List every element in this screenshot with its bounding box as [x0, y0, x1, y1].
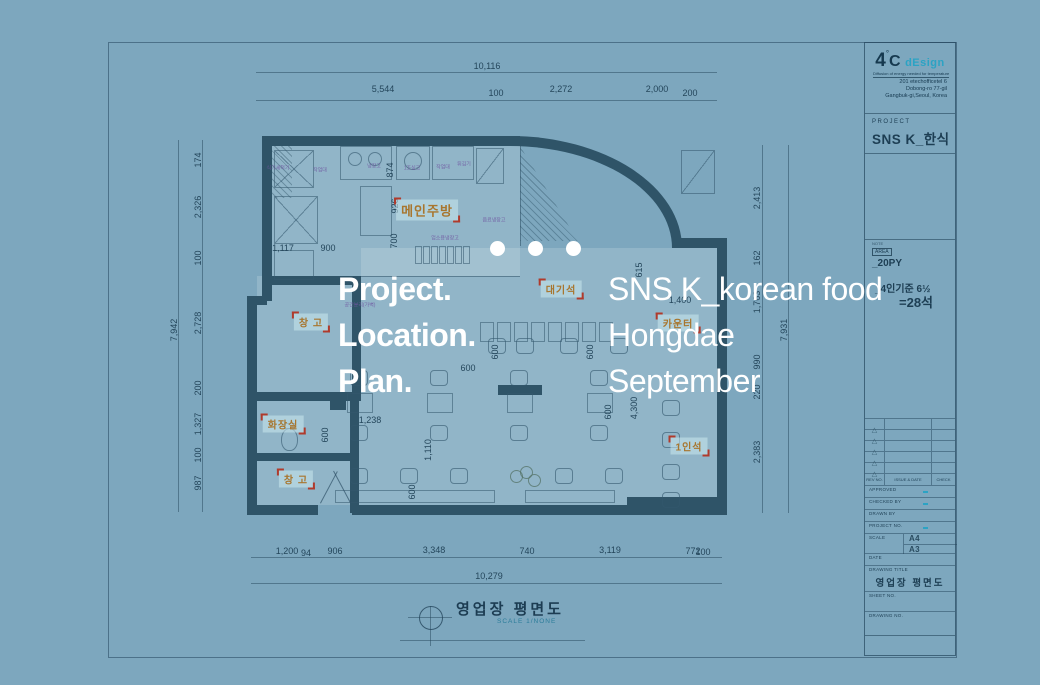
dimension-label: 600 — [490, 344, 500, 359]
chair — [400, 468, 418, 484]
chair — [605, 468, 623, 484]
equipment-circle — [348, 152, 362, 166]
chair — [662, 492, 680, 508]
dimension-line — [256, 100, 717, 101]
overlay-value-project: SNS K_korean food — [608, 266, 882, 312]
chair — [350, 468, 368, 484]
drawn-by-row: DRAWN BY — [865, 509, 955, 521]
overlay-value-location: Hongdae — [608, 312, 734, 358]
pass-counter-slot — [431, 246, 438, 264]
dimension-line — [400, 640, 585, 641]
chair — [662, 464, 680, 480]
equipment-label: 작업대 — [436, 164, 450, 171]
dimension-label: 100 — [193, 250, 203, 265]
dimension-line — [251, 583, 722, 584]
logo-c: C — [889, 53, 901, 70]
dimension-label: 1,110 — [423, 439, 433, 461]
teal-mark — [923, 491, 928, 493]
dimension-line — [256, 72, 717, 73]
title-block: 4°C dEsign Diffusion of energy needed fo… — [864, 42, 956, 656]
dimension-line — [520, 146, 521, 246]
wall-segment — [262, 136, 520, 146]
wall-segment — [247, 296, 257, 515]
kitchen-equipment — [476, 148, 504, 184]
pass-counter-slot — [439, 246, 446, 264]
kitchen-equipment — [360, 186, 392, 236]
pass-counter-slot — [415, 246, 422, 264]
dimension-label: 740 — [519, 546, 534, 556]
address-line: 201 etechofficetel 6 — [885, 79, 947, 86]
chair — [555, 468, 573, 484]
pass-counter-slot — [447, 246, 454, 264]
room-label: 창 고 — [279, 471, 313, 488]
plant — [528, 474, 541, 487]
carousel-dot[interactable] — [566, 241, 581, 256]
blueprint-presentation-page: { "colors": { "background": "#7da7be", "… — [0, 0, 1040, 685]
dimension-label: 2,413 — [752, 187, 762, 210]
dimension-label: 1,327 — [193, 413, 203, 436]
dimension-label: 3,348 — [423, 545, 446, 555]
address: 201 etechofficetel 6 Dobong-ro 77-gil Ga… — [885, 79, 947, 100]
dimension-label: 2,272 — [550, 84, 573, 94]
chair — [510, 370, 528, 386]
logo: 4°C dEsign — [865, 49, 955, 72]
dimension-label: 94 — [301, 548, 311, 558]
carousel-dot[interactable] — [528, 241, 543, 256]
equipment-label: 식기세척기 — [266, 165, 289, 172]
dimension-label: 600 — [407, 484, 417, 499]
drawing-title-value: 영업장 평면도 — [865, 575, 955, 589]
dimension-label: 2,383 — [752, 441, 762, 464]
dimension-label: 600 — [603, 404, 613, 419]
room-label: 화장실 — [263, 416, 304, 433]
dimension-label: 100 — [695, 547, 710, 557]
note-label: NOTE — [872, 241, 883, 246]
dimension-line — [762, 145, 763, 513]
chair — [560, 338, 578, 354]
capacity-line-2: =28석 — [899, 292, 933, 311]
dimension-label: 7,931 — [779, 319, 789, 342]
drawing-no-row: DRAWING NO. — [865, 611, 955, 635]
revision-row: △ — [865, 451, 955, 462]
dimension-label: 5,544 — [372, 84, 395, 94]
dimension-label: 874 — [385, 162, 395, 177]
room-label: 1인석 — [671, 438, 708, 455]
dimension-line — [251, 557, 722, 558]
dimension-label: 162 — [752, 250, 762, 265]
kitchen-equipment — [274, 196, 318, 244]
scale-label: SCALE — [869, 535, 885, 540]
project-no-row: PROJECT NO. — [865, 521, 955, 533]
dimension-label: 600 — [320, 427, 330, 442]
dimension-label: 2,326 — [193, 196, 203, 219]
revision-row: △ — [865, 429, 955, 440]
address-line: Gangbuk-gi,Seoul, Korea — [885, 93, 947, 100]
dimension-label: 100 — [193, 447, 203, 462]
wall-segment — [247, 505, 318, 515]
pass-counter-slot — [463, 246, 470, 264]
counter-slot — [582, 322, 596, 342]
dimension-label: 700 — [389, 233, 399, 248]
project-label: PROJECT — [872, 119, 911, 125]
equipment-label: 음료냉장고 — [482, 217, 505, 224]
project-name: SNS K_한식 — [872, 128, 950, 148]
pass-counter-slot — [423, 246, 430, 264]
dimension-label: 600 — [585, 344, 595, 359]
dimension-label: 1,200 — [276, 546, 299, 556]
equipment-label: 업소용냉장고 — [431, 235, 459, 242]
overlay-value-plan: September — [608, 358, 760, 404]
dimension-label: 600 — [460, 363, 475, 373]
chair — [510, 425, 528, 441]
revision-row: △ — [865, 440, 955, 451]
logo-design: dEsign — [905, 57, 945, 69]
chair — [590, 425, 608, 441]
teal-mark — [923, 503, 928, 505]
revision-row: △ — [865, 462, 955, 473]
caption-title: 영업장 평면도 — [456, 598, 564, 619]
revision-row: △ — [865, 418, 955, 429]
address-line: Dobong-ro 77-gil — [885, 86, 947, 93]
table — [507, 393, 533, 413]
chair — [350, 425, 368, 441]
equipment-label: 1조싱크 — [404, 165, 421, 172]
kitchen-equipment — [681, 150, 715, 194]
date-row: DATE — [865, 553, 955, 565]
chair — [516, 338, 534, 354]
dimension-label: 1,238 — [359, 415, 382, 425]
wall-segment — [247, 453, 359, 461]
equipment-label: 작업대 — [313, 167, 327, 174]
overlay-label-location: Location. — [338, 312, 476, 358]
dimension-label: 987 — [193, 475, 203, 490]
room-label: 메인주방 — [396, 200, 458, 221]
logo-4: 4 — [875, 50, 886, 71]
dimension-label: 2,000 — [646, 84, 669, 94]
chair — [450, 468, 468, 484]
caption-scale: SCALE 1/NONE — [497, 618, 556, 625]
dimension-label: 10,279 — [475, 571, 503, 581]
approved-row: APPROVED — [865, 485, 955, 497]
kitchen-equipment — [274, 250, 314, 280]
wall-segment — [247, 296, 267, 305]
rev-no-header: REV NO. — [865, 474, 885, 485]
room-label: 대기석 — [541, 281, 582, 298]
dimension-label: 100 — [488, 88, 503, 98]
equipment-label: 냉장고 — [367, 163, 381, 170]
overlay-label-project: Project. — [338, 266, 451, 312]
table — [427, 393, 453, 413]
caption-marker-icon — [419, 606, 443, 630]
dimension-label: 900 — [320, 243, 335, 253]
equipment-label: 튀김기 — [457, 161, 471, 168]
dimension-label: 7,942 — [169, 319, 179, 342]
sheet-no-row: SHEET NO. — [865, 591, 955, 611]
teal-mark — [923, 527, 928, 529]
overlay-label-plan: Plan. — [338, 358, 412, 404]
table — [525, 490, 615, 503]
dimension-label: 3,119 — [599, 545, 621, 555]
revision-header-row: REV NO. ISSUE & DATE CHECK — [865, 473, 955, 485]
dimension-label: 200 — [682, 88, 697, 98]
drawing-title-row: DRAWING TITLE 영업장 평면도 — [865, 565, 955, 591]
checked-by-row: CHECKED BY — [865, 497, 955, 509]
dimension-label: 200 — [193, 380, 203, 395]
area-chip: AREA — [872, 248, 892, 256]
chair — [430, 370, 448, 386]
dimension-label: 1,117 — [272, 243, 294, 253]
check-header: CHECK — [931, 474, 955, 485]
dimension-label: 10,116 — [474, 61, 501, 71]
paper-size-a4: A4 — [903, 534, 957, 544]
dimension-label: 906 — [327, 546, 342, 556]
logo-tagline: Diffusion of energy needed for temperatu… — [873, 71, 949, 78]
chair — [590, 370, 608, 386]
drawing-title-label: DRAWING TITLE — [869, 567, 908, 572]
carousel-dot[interactable] — [490, 241, 505, 256]
room-label: 창 고 — [294, 314, 328, 331]
dimension-label: 2,728 — [193, 312, 203, 335]
scale-row: SCALE A4 A3 — [865, 533, 955, 553]
dimension-label: 174 — [193, 152, 203, 167]
issue-date-header: ISSUE & DATE — [885, 474, 931, 485]
pass-counter-slot — [455, 246, 462, 264]
